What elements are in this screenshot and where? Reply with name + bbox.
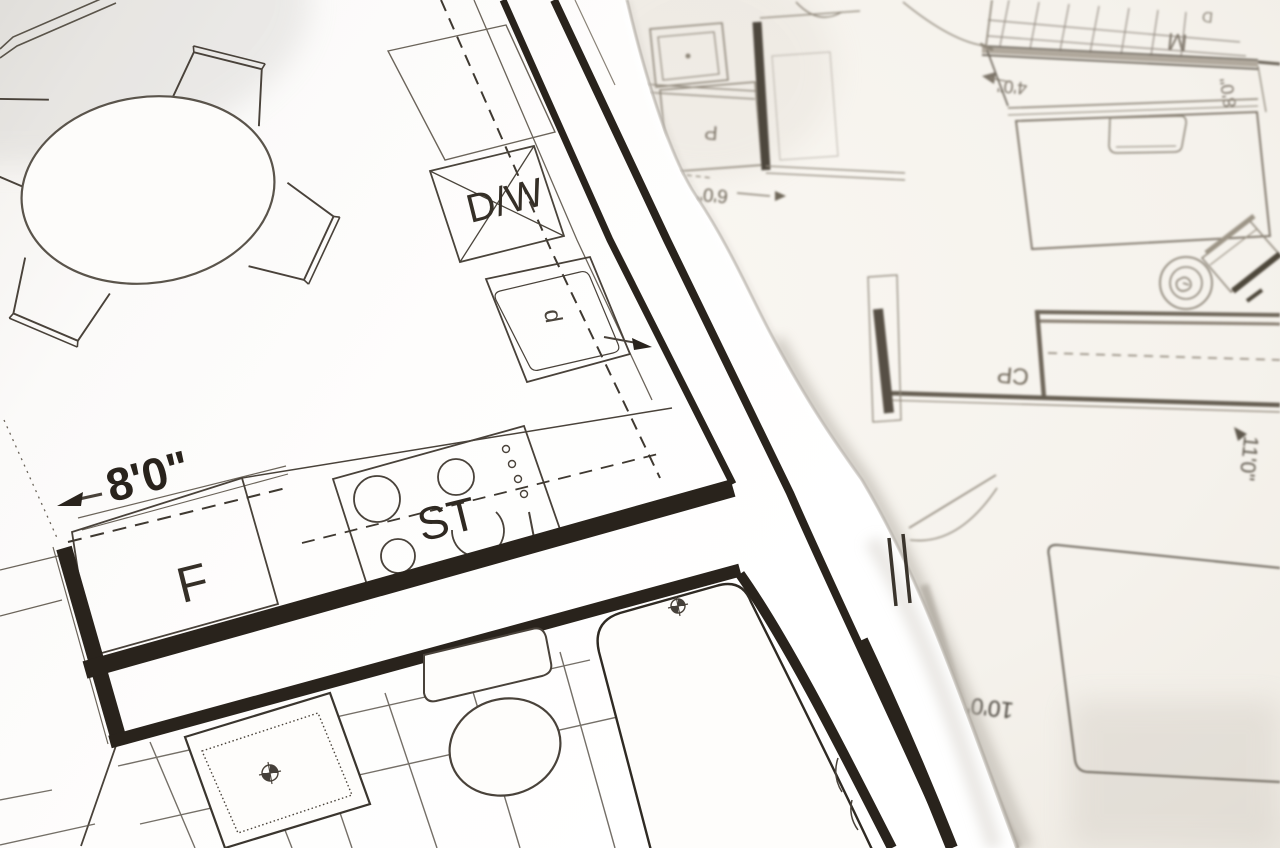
svg-text:M: M (1166, 27, 1189, 56)
svg-text:11'0": 11'0" (1235, 435, 1263, 482)
svg-text:D: D (1201, 7, 1214, 25)
svg-text:8'0": 8'0" (1216, 77, 1240, 109)
svg-text:P: P (704, 121, 719, 144)
svg-text:CP: CP (996, 362, 1030, 391)
